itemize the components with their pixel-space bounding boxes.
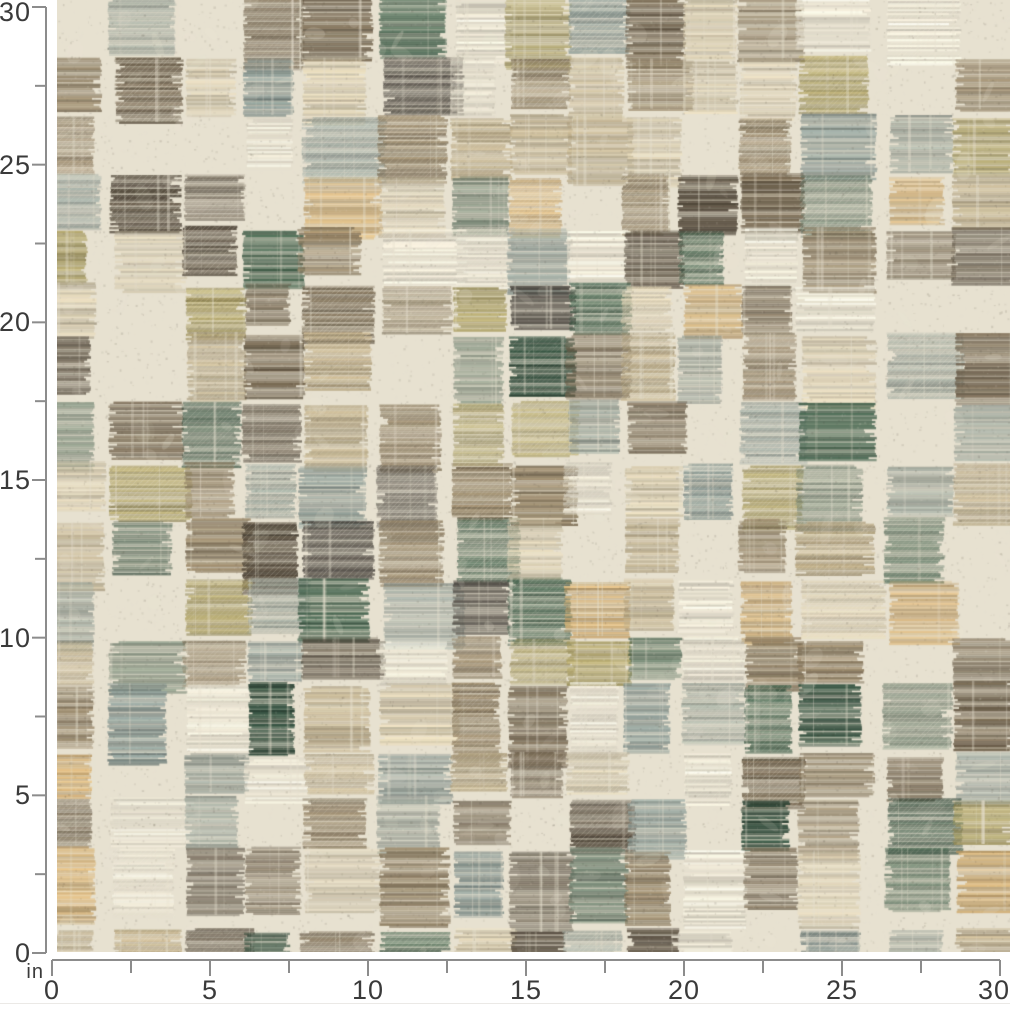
fabric-swatch-image (57, 0, 1010, 952)
h-ruler-label-25: 25 (826, 976, 858, 1004)
h-ruler-label-0: 0 (44, 976, 60, 1004)
bottom-divider (0, 1003, 1010, 1004)
h-ruler-label-5: 5 (202, 976, 218, 1004)
v-ruler-label-5: 5 (0, 781, 31, 809)
v-ruler-label-15: 15 (0, 466, 31, 494)
h-ruler-label-30: 30 (978, 976, 1010, 1004)
h-ruler-label-15: 15 (510, 976, 542, 1004)
h-ruler-label-20: 20 (668, 976, 700, 1004)
v-ruler-label-10: 10 (0, 624, 31, 652)
unit-label: in (0, 962, 44, 982)
fabric-product-view: 051015202530 051015202530 in (0, 0, 1010, 1010)
v-ruler-label-25: 25 (0, 151, 31, 179)
h-ruler-label-10: 10 (352, 976, 384, 1004)
v-ruler-label-30: 30 (0, 0, 31, 26)
v-ruler-label-20: 20 (0, 308, 31, 336)
